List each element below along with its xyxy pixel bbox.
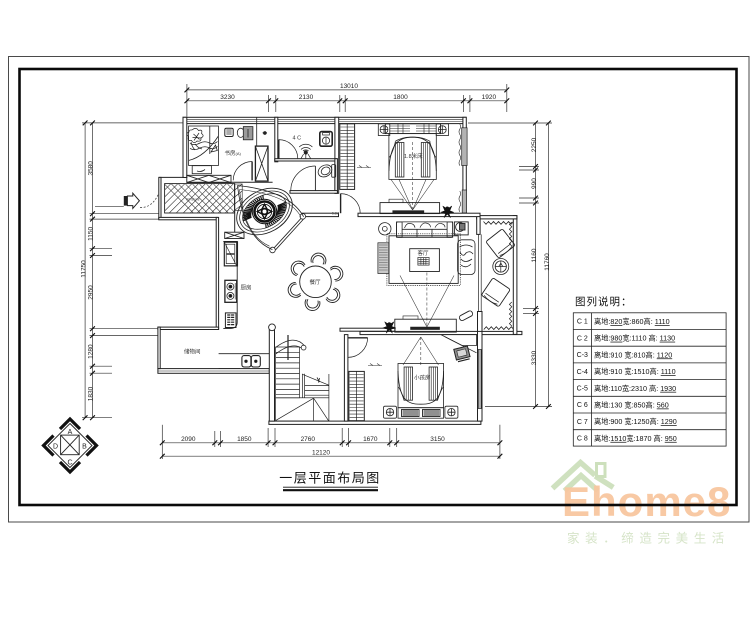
svg-text:离地:130 宽:850高: 560: 离地:130 宽:850高: 560 bbox=[594, 401, 669, 410]
svg-text:11760: 11760 bbox=[544, 253, 551, 271]
svg-text:12120: 12120 bbox=[312, 450, 330, 457]
svg-text:Ehome8: Ehome8 bbox=[562, 478, 731, 525]
svg-text:B: B bbox=[82, 443, 87, 450]
svg-text:2250: 2250 bbox=[531, 137, 538, 152]
svg-text:C 7: C 7 bbox=[577, 419, 588, 426]
svg-text:2950: 2950 bbox=[88, 285, 95, 300]
svg-text:餐厅: 餐厅 bbox=[310, 278, 322, 286]
svg-text:11750: 11750 bbox=[80, 260, 87, 278]
svg-text:1160: 1160 bbox=[531, 248, 538, 262]
svg-text:4 C: 4 C bbox=[293, 136, 302, 142]
svg-text:C-3: C-3 bbox=[577, 352, 588, 359]
svg-text:1280: 1280 bbox=[88, 344, 95, 359]
svg-text:3230: 3230 bbox=[220, 94, 235, 101]
svg-text:1850: 1850 bbox=[237, 436, 252, 443]
svg-text:3330: 3330 bbox=[531, 350, 538, 365]
svg-text:离地:1510宽:1870 高: 950: 离地:1510宽:1870 高: 950 bbox=[594, 434, 677, 443]
svg-text:小孩房: 小孩房 bbox=[414, 374, 431, 382]
svg-text:客厅: 客厅 bbox=[418, 249, 430, 257]
svg-text:5.1M: 5.1M bbox=[332, 212, 339, 216]
svg-text:2130: 2130 bbox=[299, 94, 314, 101]
svg-text:离地:820宽:860高: 1110: 离地:820宽:860高: 1110 bbox=[594, 317, 670, 326]
svg-text:离地:910 宽:1510高: 1110: 离地:910 宽:1510高: 1110 bbox=[594, 367, 676, 376]
svg-text:D: D bbox=[53, 443, 58, 450]
svg-text:13010: 13010 bbox=[340, 83, 358, 90]
svg-text:A: A bbox=[68, 429, 73, 436]
svg-text:1150: 1150 bbox=[88, 227, 95, 241]
svg-text:图列说明：: 图列说明： bbox=[575, 295, 633, 308]
svg-text:离地:110宽:2310 高: 1930: 离地:110宽:2310 高: 1930 bbox=[594, 384, 676, 393]
svg-text:家装．缔造完美生活: 家装．缔造完美生活 bbox=[567, 531, 730, 546]
svg-text:2090: 2090 bbox=[181, 436, 196, 443]
svg-text:一层平面布局图: 一层平面布局图 bbox=[279, 471, 381, 486]
svg-text:C 6: C 6 bbox=[577, 402, 588, 409]
svg-text:离地:980宽:1110 高: 1130: 离地:980宽:1110 高: 1130 bbox=[594, 334, 675, 343]
svg-text:C 8: C 8 bbox=[577, 436, 588, 443]
svg-text:1920: 1920 bbox=[482, 94, 497, 101]
svg-text:C 1: C 1 bbox=[577, 319, 588, 326]
svg-text:C: C bbox=[67, 459, 72, 466]
svg-text:1830: 1830 bbox=[88, 386, 95, 401]
svg-text:储物间: 储物间 bbox=[184, 348, 201, 356]
svg-text:1.8米床: 1.8米床 bbox=[404, 152, 423, 160]
svg-text:Art-Stone: Art-Stone bbox=[186, 198, 200, 202]
svg-text:3580: 3580 bbox=[88, 161, 95, 176]
svg-text:离地:910 宽:810高: 1120: 离地:910 宽:810高: 1120 bbox=[594, 350, 672, 359]
svg-text:1670: 1670 bbox=[363, 436, 378, 443]
svg-text:990: 990 bbox=[531, 178, 538, 189]
svg-text:1800: 1800 bbox=[393, 94, 408, 101]
svg-text:C 2: C 2 bbox=[577, 335, 588, 342]
svg-text:离地:900 宽:1250高: 1290: 离地:900 宽:1250高: 1290 bbox=[594, 417, 677, 426]
svg-text:3150: 3150 bbox=[430, 436, 445, 443]
svg-text:2760: 2760 bbox=[301, 436, 316, 443]
svg-text:C-4: C-4 bbox=[577, 369, 588, 376]
svg-text:厨房: 厨房 bbox=[241, 284, 253, 292]
svg-text:书房(A): 书房(A) bbox=[225, 149, 242, 157]
svg-text:C-5: C-5 bbox=[577, 386, 588, 393]
